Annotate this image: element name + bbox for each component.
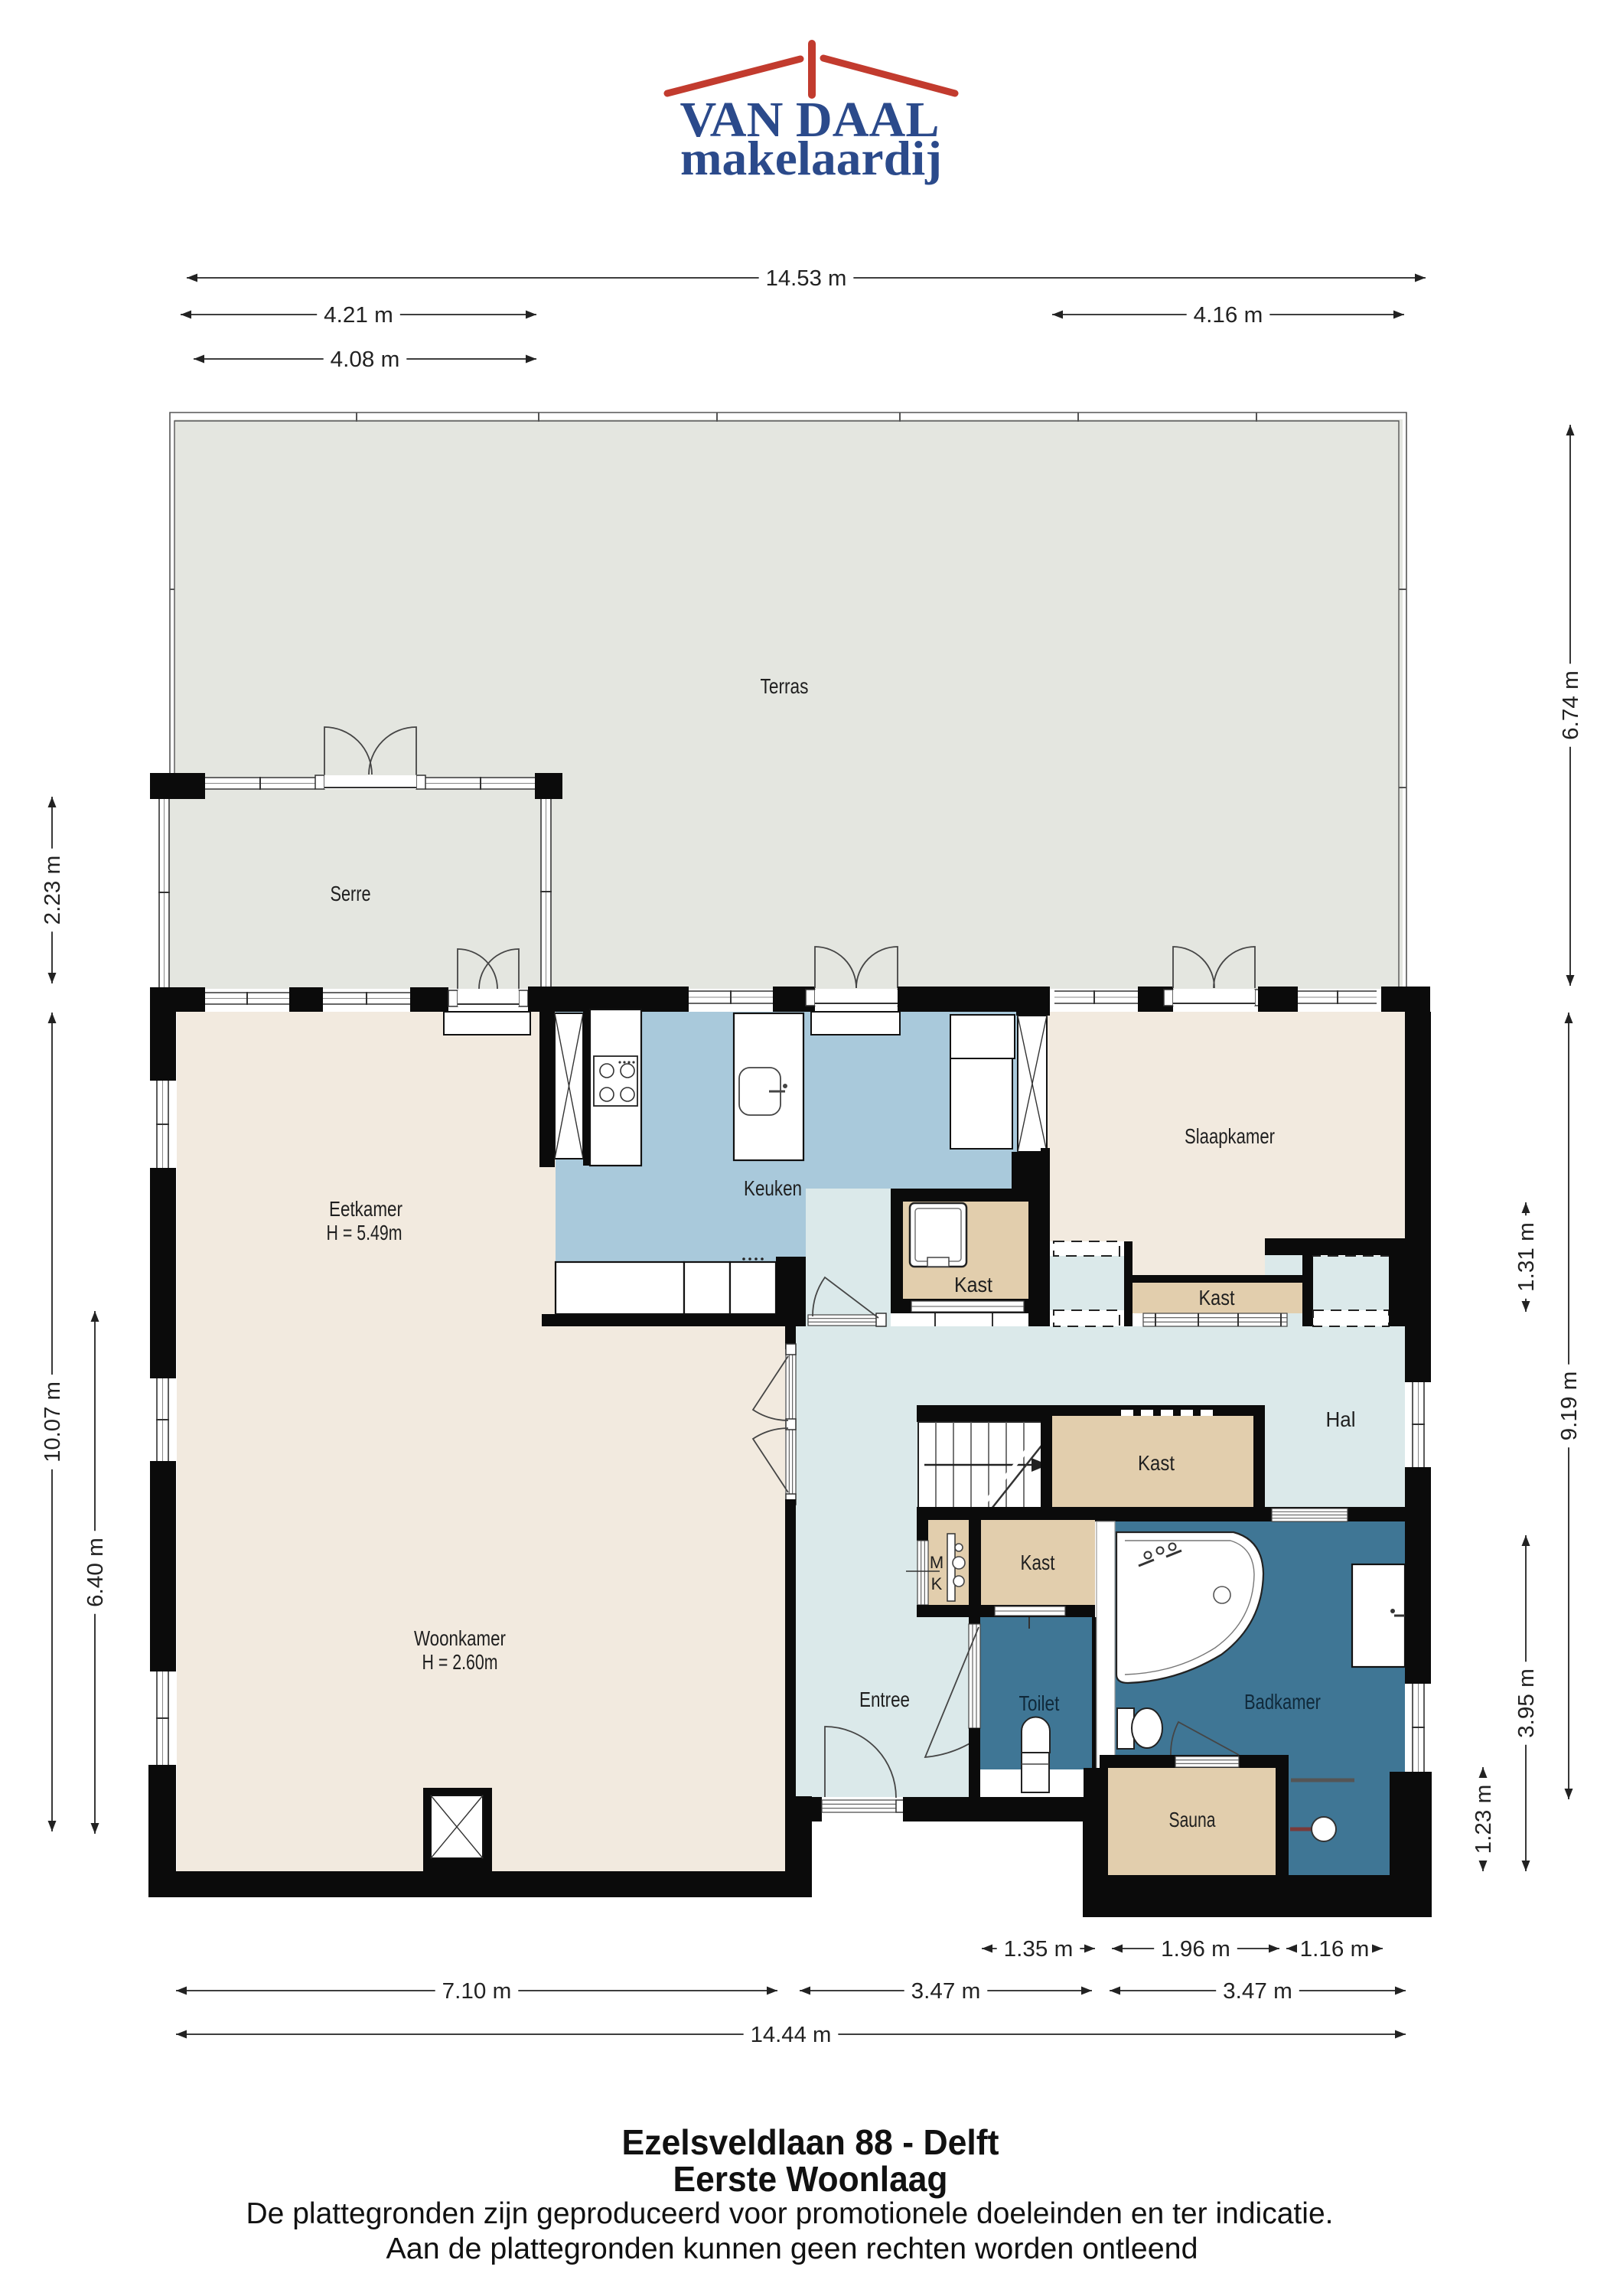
svg-text:6.74 m: 6.74 m — [1559, 670, 1583, 740]
svg-text:4.08 m: 4.08 m — [331, 347, 400, 372]
svg-text:4.21 m: 4.21 m — [324, 303, 393, 328]
svg-text:1.96 m: 1.96 m — [1161, 1937, 1230, 1962]
svg-text:1.35 m: 1.35 m — [1004, 1937, 1074, 1962]
svg-text:Kast: Kast — [1199, 1286, 1235, 1309]
svg-text:Eetkamer: Eetkamer — [329, 1197, 402, 1221]
svg-text:Terras: Terras — [761, 674, 809, 698]
svg-text:Entree: Entree — [859, 1688, 910, 1711]
svg-text:10.07 m: 10.07 m — [41, 1381, 65, 1463]
svg-text:Kast: Kast — [1138, 1451, 1175, 1475]
svg-text:14.44 m: 14.44 m — [751, 2023, 832, 2047]
svg-text:6.40 m: 6.40 m — [83, 1538, 108, 1607]
svg-text:2.23 m: 2.23 m — [41, 856, 65, 925]
svg-text:1.16 m: 1.16 m — [1300, 1937, 1370, 1962]
svg-text:H = 2.60m: H = 2.60m — [422, 1650, 498, 1674]
svg-text:Aan de plattegronden kunnen ge: Aan de plattegronden kunnen geen rechten… — [386, 2232, 1198, 2265]
svg-text:M: M — [930, 1553, 943, 1572]
svg-text:7.10 m: 7.10 m — [442, 1979, 512, 2004]
svg-text:Toilet: Toilet — [1019, 1691, 1060, 1715]
svg-text:Serre: Serre — [331, 882, 371, 905]
svg-text:De plattegronden zijn geproduc: De plattegronden zijn geproduceerd voor … — [246, 2197, 1334, 2230]
svg-text:3.95 m: 3.95 m — [1514, 1668, 1539, 1738]
svg-text:Keuken: Keuken — [744, 1176, 802, 1200]
svg-text:K: K — [931, 1574, 943, 1593]
svg-text:Kast: Kast — [954, 1273, 992, 1296]
svg-text:Kast: Kast — [1021, 1551, 1055, 1574]
svg-text:Badkamer: Badkamer — [1244, 1690, 1321, 1714]
svg-text:makelaardij: makelaardij — [680, 131, 942, 185]
svg-text:9.19 m: 9.19 m — [1557, 1371, 1582, 1441]
svg-text:Eerste Woonlaag: Eerste Woonlaag — [673, 2159, 948, 2199]
svg-text:3.47 m: 3.47 m — [911, 1979, 981, 2004]
svg-text:1.23 m: 1.23 m — [1471, 1785, 1496, 1854]
svg-text:1.31 m: 1.31 m — [1514, 1222, 1539, 1292]
svg-text:Hal: Hal — [1326, 1407, 1356, 1431]
svg-text:H = 5.49m: H = 5.49m — [327, 1221, 402, 1244]
svg-text:Sauna: Sauna — [1169, 1808, 1216, 1831]
svg-text:14.53 m: 14.53 m — [766, 266, 847, 291]
svg-text:Slaapkamer: Slaapkamer — [1185, 1124, 1275, 1148]
svg-text:4.16 m: 4.16 m — [1194, 303, 1263, 328]
svg-text:Woonkamer: Woonkamer — [414, 1626, 506, 1650]
svg-text:3.47 m: 3.47 m — [1223, 1979, 1292, 2004]
svg-text:Ezelsveldlaan 88 - Delft: Ezelsveldlaan 88 - Delft — [622, 2122, 999, 2162]
